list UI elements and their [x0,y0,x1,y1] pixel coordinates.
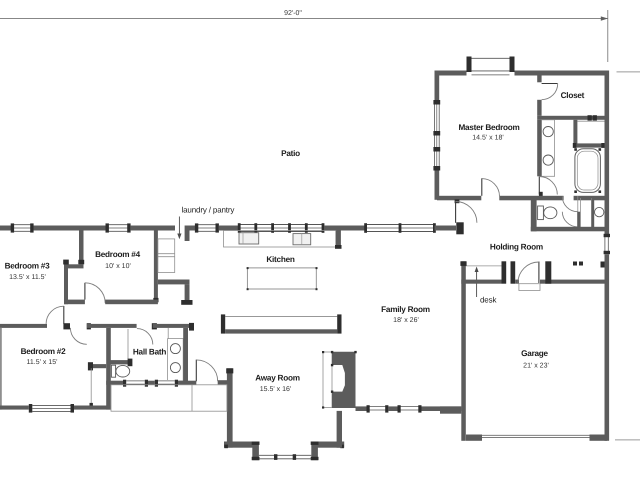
svg-text:14.5' x 18': 14.5' x 18' [472,135,503,142]
svg-text:Master Bedroom: Master Bedroom [458,123,519,132]
svg-text:Hall Bath: Hall Bath [133,348,166,357]
svg-text:Away Room: Away Room [255,374,299,383]
svg-text:Closet: Closet [561,91,585,100]
svg-text:Patio: Patio [281,149,300,158]
svg-text:Holding Room: Holding Room [490,243,543,252]
svg-text:92'-0": 92'-0" [284,10,302,17]
svg-text:laundry / pantry: laundry / pantry [182,206,235,215]
svg-text:15.5' x 16': 15.5' x 16' [260,386,291,393]
svg-text:18' x 26': 18' x 26' [393,317,419,324]
svg-text:Bedroom #2: Bedroom #2 [21,347,67,356]
svg-text:Family Room: Family Room [381,305,430,314]
svg-text:13.5' x 11.5': 13.5' x 11.5' [9,274,46,281]
svg-text:10' x 10': 10' x 10' [105,263,131,270]
svg-text:21' x 23': 21' x 23' [523,362,549,369]
svg-text:Bedroom #4: Bedroom #4 [95,250,141,259]
svg-text:Kitchen: Kitchen [266,255,295,264]
svg-text:Garage: Garage [521,349,548,358]
svg-text:11.5' x 15': 11.5' x 15' [27,359,58,366]
svg-text:desk: desk [480,296,497,305]
svg-text:Bedroom #3: Bedroom #3 [5,262,51,271]
